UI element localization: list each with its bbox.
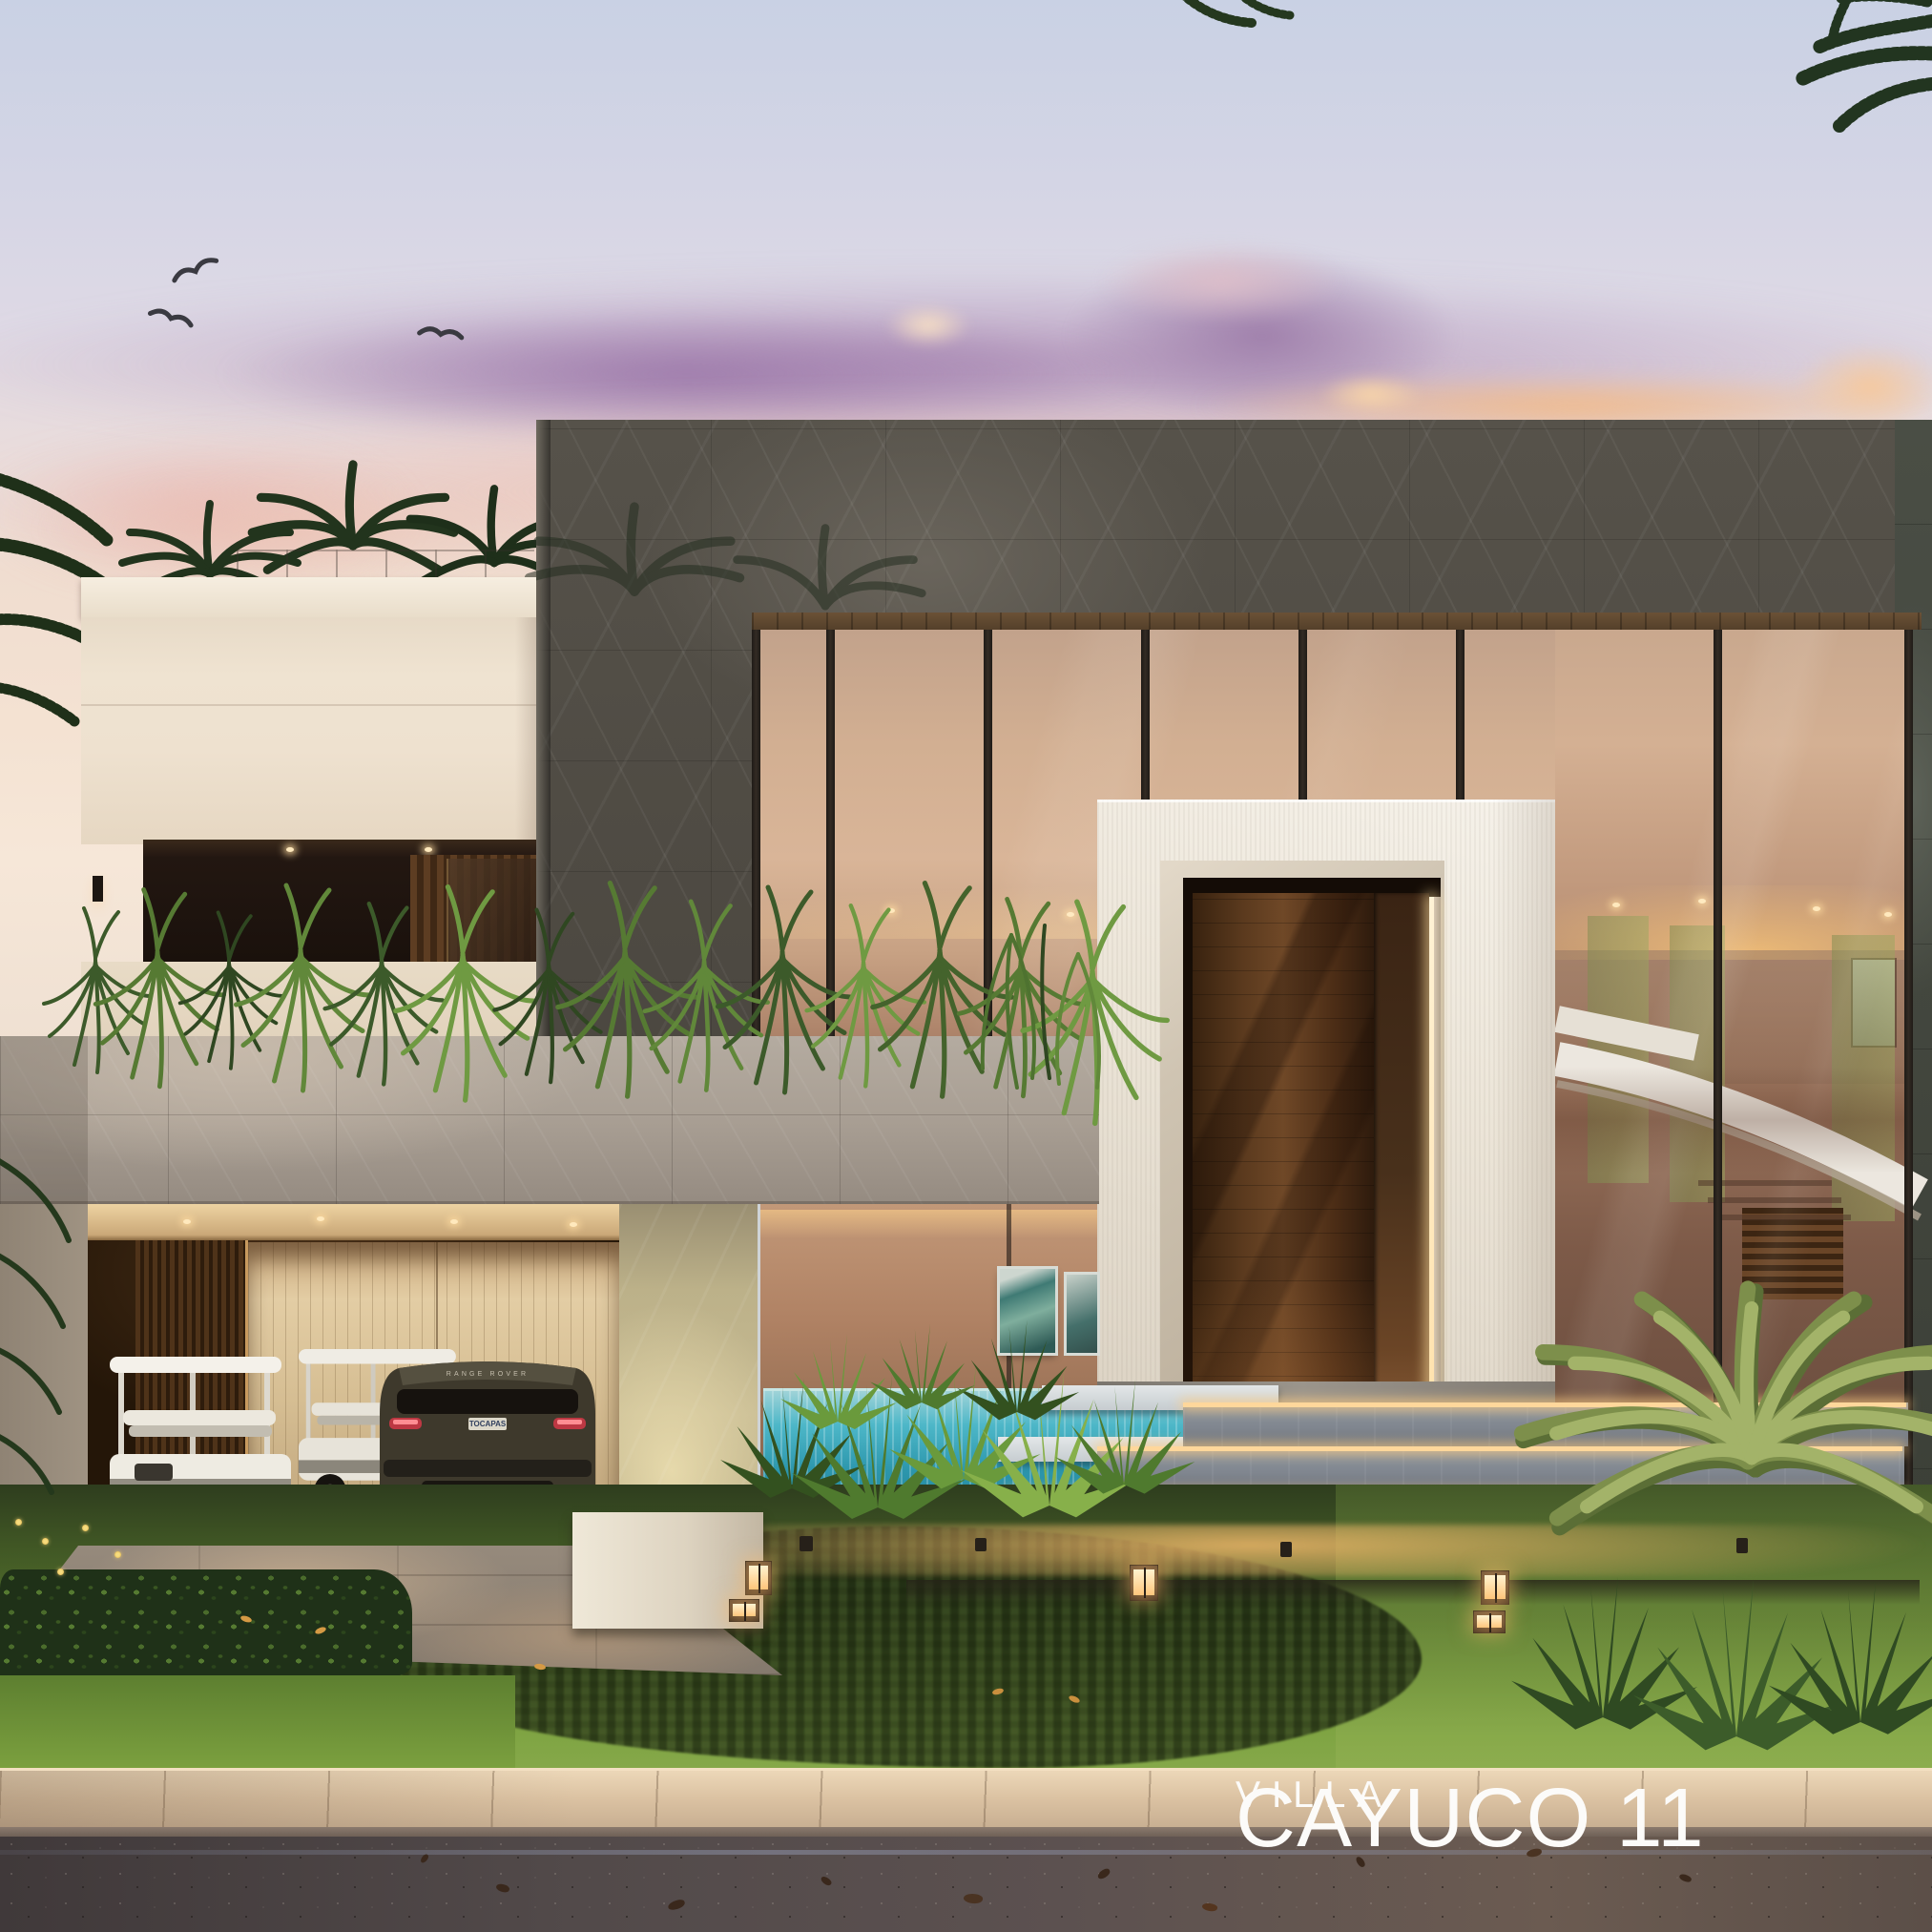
window-mullion — [1456, 630, 1465, 801]
yellow-flower-icon — [15, 1519, 22, 1526]
birds-icon — [134, 250, 477, 364]
title-line-cayuco: CAYUCO 11 — [1236, 1776, 1705, 1859]
unlit-bollard — [1736, 1538, 1748, 1553]
tropical-planting — [735, 1259, 1164, 1546]
groundcover-hedge — [0, 1569, 412, 1676]
unlit-bollard — [1280, 1542, 1292, 1557]
entry-door — [1193, 893, 1374, 1401]
door-jamb — [1434, 897, 1441, 1401]
downlight-icon — [286, 847, 294, 852]
palm-silhouette-on-stone — [520, 410, 949, 649]
downlight-icon — [450, 1219, 458, 1224]
glass-reflection — [1555, 1067, 1910, 1174]
downlight-icon — [425, 847, 432, 852]
downlight-icon — [570, 1222, 577, 1227]
tower-roof-slab — [81, 577, 536, 617]
palm-frond-corner-icon — [1612, 0, 1932, 202]
bollard-light — [745, 1561, 772, 1595]
bollard-light — [1130, 1565, 1158, 1601]
bollard-light — [1473, 1610, 1506, 1633]
left-foliage — [0, 1097, 92, 1517]
cloud-bright-spot — [885, 303, 971, 347]
bollard-light — [729, 1599, 759, 1622]
right-palm — [1517, 1221, 1932, 1755]
bollard-light — [1481, 1570, 1509, 1605]
yellow-flower-icon — [82, 1525, 89, 1531]
yellow-flower-icon — [114, 1551, 121, 1558]
tower-facade — [81, 617, 536, 844]
cloud-puff-highlight — [1097, 240, 1345, 322]
unlit-bollard — [800, 1536, 813, 1551]
suv-badge-text: RANGE ROVER — [447, 1371, 529, 1378]
window-mullion — [1141, 630, 1150, 801]
palm-frond-top-icon — [1126, 0, 1307, 55]
portal-ferns — [954, 897, 1145, 1107]
garage-soffit — [88, 1204, 619, 1240]
door-sidelight — [1374, 893, 1429, 1401]
window-mullion — [1298, 630, 1307, 801]
yellow-flower-icon — [57, 1568, 64, 1575]
facade-joint — [81, 704, 536, 706]
lawn-left — [0, 1675, 515, 1771]
roof-terrace-railing — [237, 550, 534, 578]
yellow-flower-icon — [42, 1538, 49, 1545]
downlight-icon — [317, 1216, 324, 1221]
unlit-bollard — [975, 1538, 987, 1551]
cloud-bright-spot-2 — [1319, 374, 1423, 414]
license-plate: TOCAPAS — [468, 1418, 507, 1430]
downlight-icon — [183, 1219, 191, 1224]
interior-ceiling-glow — [760, 1210, 1097, 1238]
villa-rendering: RANGE ROVER TOCAPAS — [0, 0, 1932, 1932]
